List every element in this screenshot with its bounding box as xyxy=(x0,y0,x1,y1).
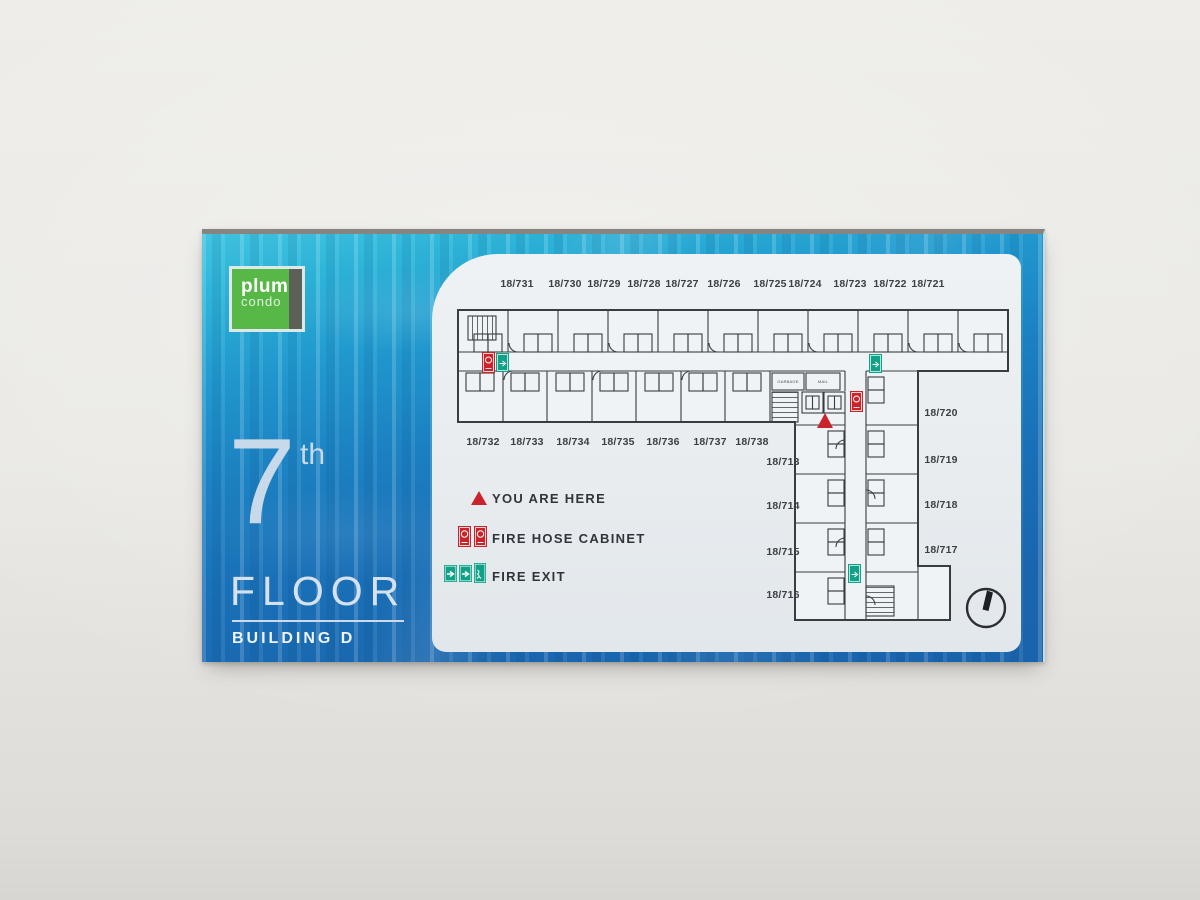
unit-label: 18/728 xyxy=(627,278,660,290)
floor-map-card xyxy=(432,254,1021,652)
compass-north-icon xyxy=(963,585,1009,631)
unit-label: 18/732 xyxy=(466,436,499,448)
unit-label: 18/717 xyxy=(924,544,957,556)
legend-fire-exit: FIRE EXIT xyxy=(492,569,566,584)
floor-ordinal: th xyxy=(300,438,325,472)
unit-label: 18/714 xyxy=(766,500,799,512)
unit-label: 18/713 xyxy=(766,456,799,468)
unit-label: 18/720 xyxy=(924,407,957,419)
unit-label: 18/731 xyxy=(500,278,533,290)
unit-label: 18/736 xyxy=(646,436,679,448)
unit-label: 18/725 xyxy=(753,278,786,290)
you-are-here-icon xyxy=(470,490,488,506)
wall-photo-background: plum condo 7 th FLOOR BUILDING D xyxy=(0,0,1200,900)
unit-label: 18/723 xyxy=(833,278,866,290)
fire-hose-cabinet-icon xyxy=(458,526,488,548)
floor-label: FLOOR xyxy=(230,568,406,615)
garbage-room-label: GARBAGE xyxy=(777,379,798,384)
unit-label: 18/722 xyxy=(873,278,906,290)
unit-label: 18/735 xyxy=(601,436,634,448)
unit-label: 18/726 xyxy=(707,278,740,290)
unit-label: 18/733 xyxy=(510,436,543,448)
unit-label: 18/724 xyxy=(788,278,821,290)
fire-exit-icon xyxy=(444,562,489,584)
legend-fire-hose-cabinet: FIRE HOSE CABINET xyxy=(492,531,646,546)
unit-label: 18/734 xyxy=(556,436,589,448)
logo-gray-strip xyxy=(289,269,302,329)
unit-label: 18/737 xyxy=(693,436,726,448)
unit-label: 18/729 xyxy=(587,278,620,290)
floor-number: 7 xyxy=(228,420,296,542)
unit-label: 18/730 xyxy=(548,278,581,290)
logo-brand-bottom: condo xyxy=(241,296,289,308)
unit-label: 18/718 xyxy=(924,499,957,511)
legend-you-are-here: YOU ARE HERE xyxy=(492,491,606,506)
unit-label: 18/727 xyxy=(665,278,698,290)
plum-condo-logo: plum condo xyxy=(229,266,305,332)
unit-label: 18/721 xyxy=(911,278,944,290)
unit-label: 18/738 xyxy=(735,436,768,448)
mail-room-label: MAIL xyxy=(818,379,828,384)
unit-label: 18/719 xyxy=(924,454,957,466)
unit-label: 18/715 xyxy=(766,546,799,558)
plum-condo-logo-text: plum condo xyxy=(232,269,289,329)
unit-label: 18/716 xyxy=(766,589,799,601)
divider-line xyxy=(232,620,404,622)
building-label: BUILDING D xyxy=(232,630,355,648)
